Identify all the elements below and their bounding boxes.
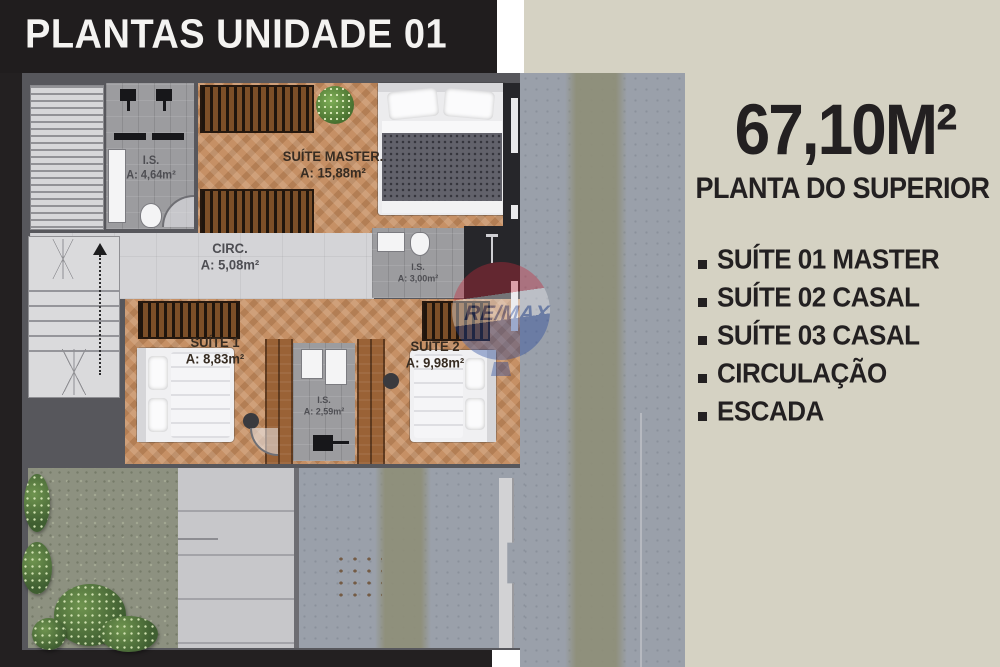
title-banner: PLANTAS UNIDADE 01 <box>0 0 497 73</box>
bullet-icon <box>698 374 707 383</box>
stair-winders <box>33 239 93 279</box>
stair-path <box>99 255 101 375</box>
stair-winders <box>29 349 119 395</box>
driveway-stripe <box>565 73 627 667</box>
bush <box>100 616 158 652</box>
plant-icon <box>316 86 354 124</box>
toilet <box>410 232 430 256</box>
driveway-joint <box>640 413 642 667</box>
pebbles <box>334 553 382 605</box>
bullet-icon <box>698 336 707 345</box>
door-arc <box>162 195 194 227</box>
pillow <box>465 398 485 430</box>
total-area: 67,10M² <box>700 88 990 171</box>
bush <box>24 474 50 532</box>
legend-item: SUÍTE 02 CASAL <box>698 276 998 314</box>
paved-patio <box>178 468 294 648</box>
stair-steps <box>29 277 119 352</box>
room-label-suite2: SUÍTE 2 A: 9,98m² <box>380 338 490 372</box>
shower-arm <box>333 441 349 444</box>
room-label-is2: I.S. A: 3,00m² <box>372 261 464 285</box>
shower-screen <box>152 133 184 140</box>
bathroom-is1: I.S. A: 4,64m² <box>106 83 194 229</box>
page-title: PLANTAS UNIDADE 01 <box>25 12 447 58</box>
wardrobe-slats <box>200 85 314 133</box>
legend-item: CIRCULAÇÃO <box>698 352 998 390</box>
divider-strip-top <box>497 0 524 73</box>
floor-plan: I.S. A: 4,64m² SUÍTE MASTER. A: 15,88m² <box>22 73 520 650</box>
window <box>511 281 518 331</box>
shower-screen <box>114 133 146 140</box>
vanity <box>377 232 405 252</box>
plan-subtitle: PLANTA DO SUPERIOR <box>690 172 995 205</box>
legend-item: SUÍTE 01 MASTER <box>698 238 998 276</box>
legend-item: SUÍTE 03 CASAL <box>698 314 998 352</box>
shower-icon <box>313 435 333 451</box>
pillow <box>443 88 495 120</box>
shower-stem-icon <box>127 101 130 111</box>
room-label-suite1: SUÍTE 1 A: 8,83m² <box>150 334 280 368</box>
driveway <box>520 73 685 667</box>
pillow <box>148 398 168 432</box>
bullet-icon <box>698 260 707 269</box>
garden-gravel <box>28 468 178 648</box>
up-arrow-icon <box>93 243 107 255</box>
suites-band: SUÍTE 1 A: 8,83m² I.S. A: 2,59m² <box>125 299 520 464</box>
window <box>511 205 518 219</box>
frame-bottom <box>0 650 492 667</box>
floor-plan-page: PLANTAS UNIDADE 01 I.S. A: 4,64m² <box>0 0 1000 667</box>
court-stripe <box>375 468 431 648</box>
bullet-icon <box>698 298 707 307</box>
legend-list: SUÍTE 01 MASTER SUÍTE 02 CASAL SUÍTE 03 … <box>698 238 998 428</box>
sink <box>301 349 323 379</box>
headboard <box>137 348 146 442</box>
frame-left <box>0 73 22 667</box>
wardrobe-slats <box>422 301 490 341</box>
room-label-suite-master: SUÍTE MASTER. A: 15,88m² <box>253 148 413 182</box>
pillow <box>387 87 440 120</box>
toilet <box>140 203 162 228</box>
patio-step <box>178 538 218 540</box>
bathroom-is2: I.S. A: 3,00m² <box>372 228 464 298</box>
bathroom-is3: I.S. A: 2,59m² <box>293 343 355 461</box>
legend-item: ESCADA <box>698 390 998 428</box>
bush <box>22 542 52 594</box>
toilet <box>325 349 347 385</box>
louver-deck <box>30 85 104 230</box>
side-table <box>243 413 259 429</box>
hanger-rail <box>491 237 493 263</box>
shower-stem-icon <box>163 101 166 111</box>
room-label-circ: CIRC. A: 5,08m² <box>170 240 290 274</box>
shower-head-icon <box>120 89 136 101</box>
room-label-is1: I.S. A: 4,64m² <box>112 154 190 183</box>
bush <box>32 618 66 650</box>
bullet-icon <box>698 412 707 421</box>
room-label-is3: I.S. A: 2,59m² <box>293 394 355 418</box>
wardrobe-slats <box>200 189 314 235</box>
staircase <box>28 236 120 398</box>
sheet-edge <box>382 201 502 213</box>
paved-court <box>294 468 525 648</box>
stepped-wall <box>499 478 514 648</box>
side-table <box>383 373 399 389</box>
suite-master-room: SUÍTE MASTER. A: 15,88m² <box>198 83 506 233</box>
shower-head-icon <box>156 89 172 101</box>
window <box>511 98 518 153</box>
